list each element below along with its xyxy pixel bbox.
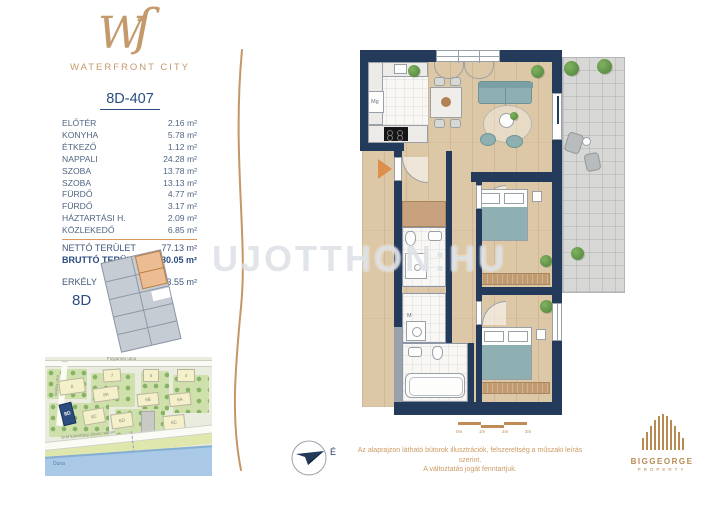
bed-2 [480, 327, 532, 380]
washing-machine [406, 321, 426, 341]
wall [394, 402, 562, 415]
window [436, 50, 500, 62]
scale-tick: 1m [479, 429, 485, 434]
area-row: NAPPALI24.28 m² [62, 154, 197, 166]
sink [408, 347, 422, 357]
map-building: 6D [110, 412, 134, 430]
area-row: SZOBA13.78 m² [62, 166, 197, 178]
wall [360, 50, 436, 62]
waterfront-logo-icon: W ſ [90, 4, 170, 58]
map-building: 7 [103, 368, 122, 382]
watermark: UJOTTHON:HU [212, 238, 507, 280]
area-row: ÉTKEZŐ1.12 m² [62, 142, 197, 154]
scale-tick: 2m [502, 429, 508, 434]
divider [62, 239, 197, 240]
entry-door [394, 157, 402, 181]
unit-id: 8D-407 [100, 91, 160, 110]
coffee-table-plant [510, 112, 518, 120]
map-building: 5 [143, 369, 159, 382]
wall [471, 172, 562, 182]
dining-chair [434, 119, 445, 128]
wall [552, 50, 562, 93]
kitchen-sink [394, 64, 407, 74]
area-table: ELŐTÉR2.16 m² KONYHA5.78 m² ÉTKEZŐ1.12 m… [62, 118, 197, 237]
area-row: HÁZTARTÁSI H.2.09 m² [62, 213, 197, 225]
toilet [432, 346, 443, 360]
wall [360, 50, 368, 149]
bed-1 [476, 189, 528, 241]
north-label: É [330, 447, 336, 457]
entrance-arrow-icon [378, 159, 392, 179]
disclaimer-line1: Az alaprajzon látható bútorok illusztrác… [355, 446, 585, 465]
wall-concrete [394, 327, 402, 407]
bedroom2-door [476, 301, 482, 325]
sofa [478, 81, 532, 104]
compass-icon [290, 438, 342, 480]
nightstand [532, 191, 542, 202]
scale-tick: 0m [456, 429, 462, 434]
nightstand [536, 329, 546, 340]
area-row: FÜRDŐ3.17 m² [62, 201, 197, 213]
disclaimer: Az alaprajzon látható bútorok illusztrác… [355, 446, 585, 475]
washer-label: M [407, 313, 412, 319]
terrace-table [582, 137, 591, 146]
wall [552, 140, 562, 303]
bedroom2-rug [476, 382, 550, 394]
terrace-plant [571, 247, 584, 260]
terrace-sliding-door [552, 93, 562, 140]
terrace [562, 57, 625, 293]
street-top-label: Folyamőr utca [107, 357, 136, 361]
dishwasher-label: Mg [371, 99, 379, 105]
terrace-plant [597, 59, 612, 74]
utility-room [402, 201, 446, 227]
area-row: FÜRDŐ4.77 m² [62, 189, 197, 201]
area-row: SZOBA13.13 m² [62, 178, 197, 190]
bathtub [405, 373, 465, 398]
pouf [480, 133, 496, 146]
table-decor [441, 97, 451, 107]
cooktop [384, 127, 408, 141]
french-window [552, 303, 562, 341]
svg-text:ſ: ſ [130, 4, 160, 56]
bedroom1-plant [540, 255, 552, 267]
location-map: Folyamőr utca Matróz utca 7 5 4 8 8A 6B … [45, 357, 212, 476]
map-building: 6A [168, 392, 191, 407]
scale-tick: 3m [525, 429, 531, 434]
floorplan-sheet: W ſ WATERFRONT CITY 8D-407 ELŐTÉR2.16 m²… [0, 0, 720, 510]
developer-name: BIGGEORGE [622, 457, 702, 466]
developer-subtitle: PROPERTY [622, 467, 702, 472]
wall [552, 341, 562, 415]
pouf [506, 135, 523, 148]
area-row: ELŐTÉR2.16 m² [62, 118, 197, 130]
kitchen-plant [408, 65, 420, 77]
scale-bar: 0m 1m 2m 3m [458, 419, 530, 435]
dining-chair [450, 119, 461, 128]
area-row: KONYHA5.78 m² [62, 130, 197, 142]
sidebar: W ſ WATERFRONT CITY 8D-407 ELŐTÉR2.16 m²… [40, 0, 220, 500]
wall [476, 287, 562, 295]
area-row: KÖZLEKEDŐ6.85 m² [62, 225, 197, 237]
river-label: Duna [53, 461, 65, 467]
dishwasher: Mg [368, 91, 384, 113]
map-building: 4 [177, 369, 195, 382]
netto-row: NETTÓ TERÜLET77.13 m² [62, 242, 197, 254]
living-plant [531, 65, 544, 78]
developer-logo-icon [640, 412, 686, 452]
brand-name: WATERFRONT CITY [40, 62, 220, 73]
bedroom1-door [476, 185, 482, 209]
terrace-plant [564, 61, 579, 76]
map-building: 6B [136, 392, 159, 407]
wall [468, 343, 474, 402]
keyplan-label: 8D [72, 292, 91, 309]
street-top-road [45, 360, 212, 367]
developer-logo: BIGGEORGE PROPERTY [622, 412, 702, 482]
disclaimer-line2: A változtatás jogát fenntartjuk. [355, 465, 585, 475]
